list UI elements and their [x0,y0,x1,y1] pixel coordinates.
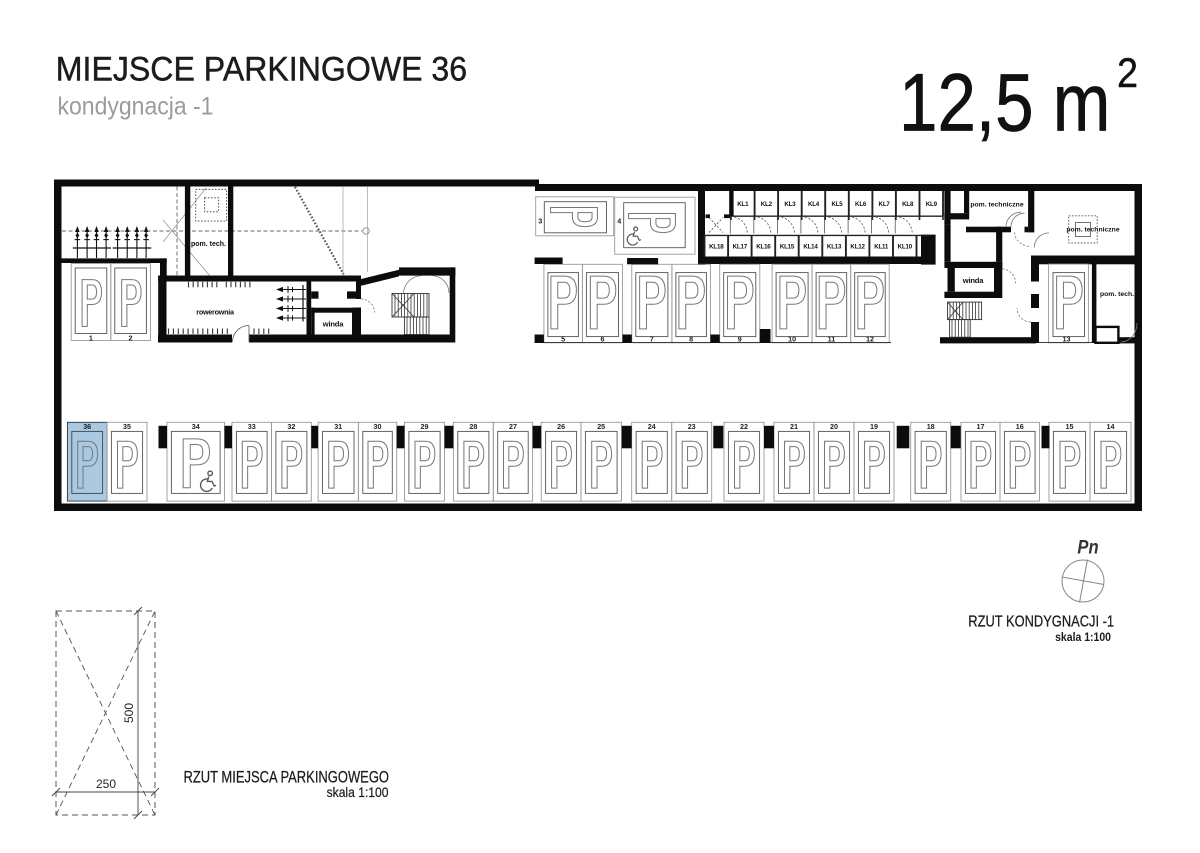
svg-text:9: 9 [738,334,742,343]
svg-text:skala 1:100: skala 1:100 [327,784,389,800]
svg-text:11: 11 [828,334,836,343]
svg-text:250: 250 [96,777,116,791]
svg-text:pom. techniczne: pom. techniczne [970,202,1023,209]
svg-text:19: 19 [870,422,878,431]
svg-text:500: 500 [122,703,136,723]
svg-text:2: 2 [1117,50,1138,96]
svg-text:4: 4 [617,217,621,226]
svg-text:winda: winda [962,276,984,285]
svg-text:8: 8 [689,334,693,343]
svg-text:22: 22 [740,422,748,431]
svg-text:KL2: KL2 [761,201,773,208]
svg-text:pom. tech.: pom. tech. [1100,291,1134,298]
svg-text:1: 1 [89,333,93,342]
svg-text:10: 10 [788,334,796,343]
svg-text:6: 6 [601,334,605,343]
svg-text:winda: winda [322,319,344,328]
svg-text:KL16: KL16 [756,244,771,251]
svg-text:29: 29 [421,422,429,431]
svg-text:KL6: KL6 [855,201,867,208]
svg-text:KL12: KL12 [850,244,865,251]
svg-text:KL10: KL10 [898,244,913,251]
svg-text:35: 35 [123,422,131,431]
svg-text:15: 15 [1066,422,1074,431]
svg-text:Pn: Pn [1077,536,1098,558]
svg-text:KL1: KL1 [737,201,749,208]
svg-text:KL9: KL9 [926,201,938,208]
svg-text:21: 21 [790,422,798,431]
svg-text:3: 3 [538,217,542,226]
svg-text:23: 23 [688,422,696,431]
svg-text:MIEJSCE PARKINGOWE 36: MIEJSCE PARKINGOWE 36 [56,50,467,88]
svg-text:5: 5 [561,334,565,343]
svg-text:27: 27 [509,422,517,431]
svg-text:12,5 m: 12,5 m [899,57,1110,149]
svg-text:25: 25 [597,422,605,431]
svg-text:pom. tech.: pom. tech. [191,241,226,248]
svg-text:KL3: KL3 [784,201,796,208]
svg-text:13: 13 [1063,334,1071,343]
svg-text:rowerownia: rowerownia [196,307,235,316]
svg-text:31: 31 [334,422,342,431]
svg-text:skala 1:100: skala 1:100 [1055,631,1111,644]
svg-text:7: 7 [650,334,654,343]
svg-text:KL4: KL4 [808,201,820,208]
svg-text:KL18: KL18 [709,244,724,251]
svg-text:28: 28 [469,422,477,431]
svg-text:KL17: KL17 [733,244,748,251]
svg-text:KL15: KL15 [780,244,795,251]
svg-text:26: 26 [557,422,565,431]
svg-text:KL8: KL8 [902,201,914,208]
svg-text:12: 12 [866,334,874,343]
svg-text:18: 18 [927,422,935,431]
svg-text:KL7: KL7 [879,201,891,208]
svg-text:pom. techniczne: pom. techniczne [1066,227,1119,234]
svg-text:KL14: KL14 [803,244,818,251]
svg-text:36: 36 [83,422,91,431]
svg-text:2: 2 [129,333,133,342]
svg-text:RZUT KONDYGNACJI -1: RZUT KONDYGNACJI -1 [968,613,1114,631]
svg-text:17: 17 [977,422,985,431]
svg-text:kondygnacja -1: kondygnacja -1 [58,92,214,120]
svg-text:KL13: KL13 [827,244,842,251]
svg-text:KL5: KL5 [831,201,843,208]
svg-text:33: 33 [248,422,256,431]
svg-text:16: 16 [1016,422,1024,431]
svg-text:20: 20 [830,422,838,431]
svg-text:14: 14 [1107,422,1115,431]
svg-text:KL11: KL11 [874,244,889,251]
svg-text:30: 30 [374,422,382,431]
svg-text:32: 32 [287,422,295,431]
svg-text:34: 34 [192,422,200,431]
svg-text:24: 24 [648,422,656,431]
